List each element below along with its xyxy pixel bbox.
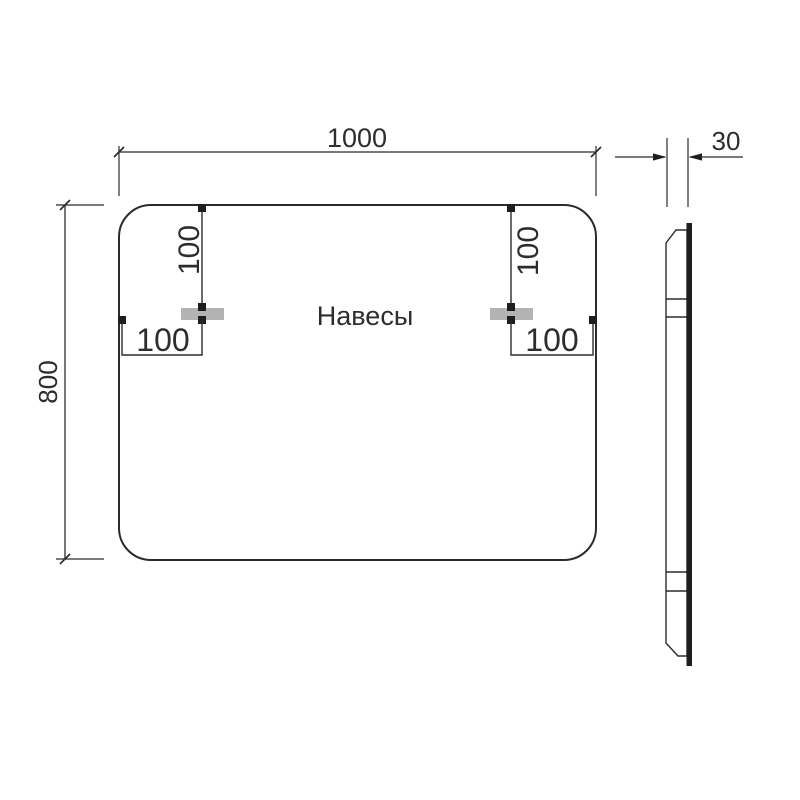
left-hanger-top-marker xyxy=(198,204,206,212)
right-hanger-top-offset-label: 100 xyxy=(512,226,545,276)
width-dim-label: 1000 xyxy=(327,123,387,153)
technical-drawing-canvas: 1000 800 100 100 xyxy=(0,0,800,800)
drawing-svg: 1000 800 100 100 xyxy=(0,0,800,800)
dimension-width-1000: 1000 xyxy=(114,123,601,196)
right-hanger-top-marker xyxy=(507,204,515,212)
right-hanger-upper-marker xyxy=(507,303,515,311)
left-hanger-side-offset-label: 100 xyxy=(136,322,189,358)
left-hanger-upper-marker xyxy=(198,303,206,311)
right-hanger-side-offset-label: 100 xyxy=(525,322,578,358)
left-hanger-top-offset-label: 100 xyxy=(173,225,206,275)
depth-arrow-left xyxy=(653,153,667,160)
left-edge-marker xyxy=(118,316,126,324)
right-edge-marker xyxy=(589,316,597,324)
height-dim-label: 800 xyxy=(33,360,63,403)
dimension-height-800: 800 xyxy=(33,200,104,564)
mirror-side-profile xyxy=(666,230,687,656)
depth-arrow-right xyxy=(689,153,703,160)
mirror-glass-edge xyxy=(687,223,693,666)
depth-dim-label: 30 xyxy=(712,126,741,156)
hangers-annotation: Навесы xyxy=(317,301,413,331)
dimension-depth-30: 30 xyxy=(615,126,743,207)
